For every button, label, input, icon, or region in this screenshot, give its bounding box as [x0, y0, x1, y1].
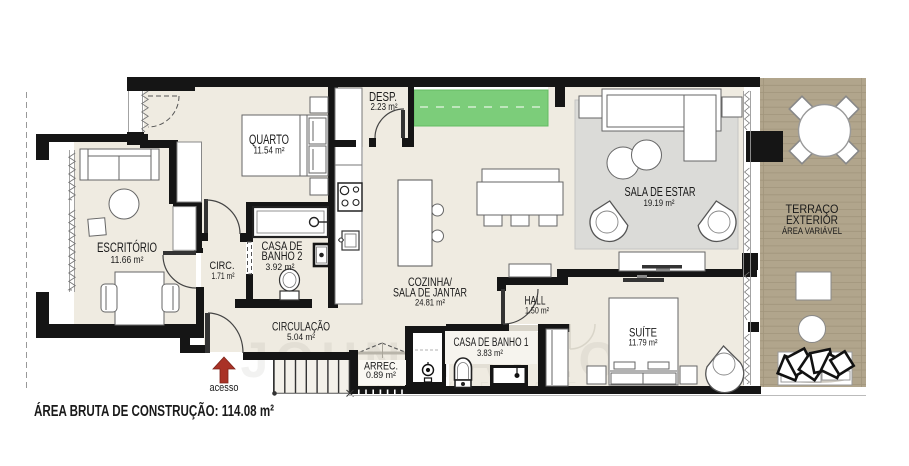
svg-text:3.92 m²: 3.92 m²: [266, 262, 295, 273]
svg-text:ÁREA VARIÁVEL: ÁREA VARIÁVEL: [782, 226, 842, 236]
svg-text:acesso: acesso: [210, 382, 239, 394]
svg-text:19.19 m²: 19.19 m²: [644, 198, 675, 209]
svg-text:0.89 m²: 0.89 m²: [366, 370, 396, 381]
svg-text:24.81 m²: 24.81 m²: [415, 298, 445, 309]
svg-text:11.54 m²: 11.54 m²: [254, 146, 286, 157]
svg-text:SALA DE ESTAR: SALA DE ESTAR: [625, 185, 696, 199]
svg-text:ESCRITÓRIO: ESCRITÓRIO: [97, 240, 157, 255]
svg-text:ÁREA BRUTA DE CONSTRUÇÃO: 114.: ÁREA BRUTA DE CONSTRUÇÃO: 114.08 m²: [34, 400, 274, 420]
svg-text:2.23 m²: 2.23 m²: [371, 102, 399, 113]
svg-text:3.83 m²: 3.83 m²: [477, 348, 503, 359]
svg-text:11.66 m²: 11.66 m²: [111, 255, 145, 266]
svg-text:1.50 m²: 1.50 m²: [525, 306, 549, 317]
svg-text:1.71 m²: 1.71 m²: [212, 271, 235, 282]
svg-text:11.79 m²: 11.79 m²: [629, 338, 658, 349]
svg-text:5.04 m²: 5.04 m²: [287, 332, 315, 343]
